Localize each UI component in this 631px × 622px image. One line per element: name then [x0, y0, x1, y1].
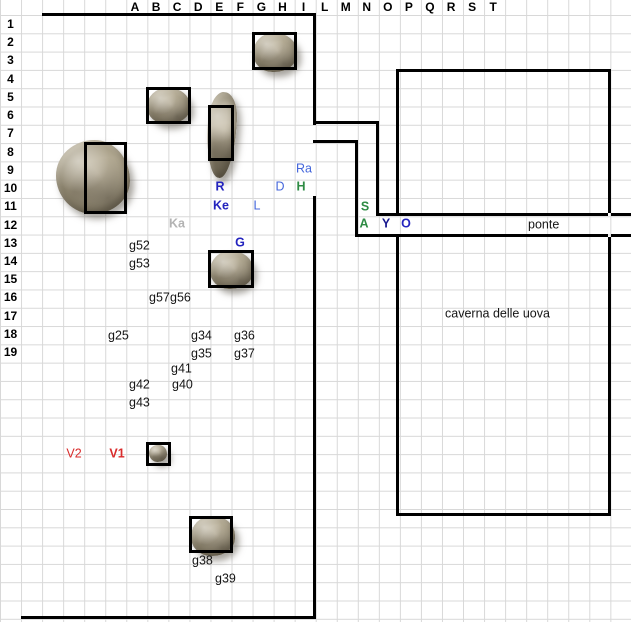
grid-label-g39: g39 — [215, 573, 236, 586]
row-header-17[interactable]: 17 — [0, 307, 21, 325]
wall-segment-3 — [313, 121, 379, 124]
column-header-T[interactable]: T — [483, 0, 504, 15]
wall-segment-11 — [313, 196, 316, 619]
place-label-ponte: ponte — [528, 219, 559, 232]
row-header-11[interactable]: 11 — [0, 197, 21, 215]
grid-label-g40: g40 — [172, 379, 193, 392]
row-header-15[interactable]: 15 — [0, 270, 21, 288]
unit-marker-Y[interactable]: Y — [382, 218, 390, 231]
wall-segment-12 — [21, 616, 316, 619]
row-header-19[interactable]: 19 — [0, 343, 21, 361]
grid-label-g43: g43 — [129, 397, 150, 410]
row-header-16[interactable]: 16 — [0, 288, 21, 306]
wall-segment-17 — [608, 237, 611, 516]
unit-marker-V2[interactable]: V2 — [66, 448, 81, 461]
row-header-14[interactable]: 14 — [0, 252, 21, 270]
column-header-M[interactable]: M — [335, 0, 356, 15]
unit-marker-A[interactable]: A — [359, 218, 368, 231]
map-grid[interactable]: ABCDEFGHILMNOPQRST 123456789101112131415… — [0, 0, 631, 622]
unit-marker-H[interactable]: H — [296, 181, 305, 194]
row-header-5[interactable]: 5 — [0, 88, 21, 106]
row-header-4[interactable]: 4 — [0, 70, 21, 88]
wall-segment-15 — [396, 237, 399, 516]
column-header-Q[interactable]: Q — [419, 0, 440, 15]
grid-label-g53: g53 — [129, 258, 150, 271]
row-header-2[interactable]: 2 — [0, 33, 21, 51]
token-box-D28:E29 — [189, 516, 233, 553]
grid-label-g35: g35 — [191, 348, 212, 361]
row-header-13[interactable]: 13 — [0, 234, 21, 252]
row-header-10[interactable]: 10 — [0, 179, 21, 197]
unit-marker-Ke[interactable]: Ke — [213, 200, 229, 213]
token-box-E6:E8 — [208, 105, 234, 161]
row-header-6[interactable]: 6 — [0, 106, 21, 124]
column-header-P[interactable]: P — [398, 0, 419, 15]
grid-label-g52: g52 — [129, 240, 150, 253]
wall-segment-16 — [608, 69, 611, 213]
wall-segment-9 — [355, 234, 608, 237]
unit-marker-R[interactable]: R — [215, 181, 224, 194]
grid-label-g37: g37 — [234, 348, 255, 361]
unit-marker-V1[interactable]: V1 — [109, 448, 124, 461]
unit-marker-Ka[interactable]: Ka — [169, 218, 185, 231]
wall-segment-8 — [355, 140, 358, 237]
token-box-E14:F15 — [208, 250, 254, 288]
unit-marker-O[interactable]: O — [401, 218, 411, 231]
token-box-B24 — [146, 442, 171, 466]
grid-label-g41: g41 — [171, 363, 192, 376]
place-label-caverna-delle-uova: caverna delle uova — [445, 308, 550, 321]
row-header-8[interactable]: 8 — [0, 143, 21, 161]
token-box-A8:B11 — [84, 142, 127, 214]
column-header-R[interactable]: R — [441, 0, 462, 15]
grid-label-g42: g42 — [129, 379, 150, 392]
grid-label-g34: g34 — [191, 330, 212, 343]
row-header-7[interactable]: 7 — [0, 124, 21, 142]
grid-label-g25: g25 — [108, 330, 129, 343]
wall-segment-1 — [42, 13, 316, 16]
unit-marker-Ra[interactable]: Ra — [296, 163, 312, 176]
wall-segment-7 — [313, 140, 358, 143]
column-header-O[interactable]: O — [377, 0, 398, 15]
row-header-18[interactable]: 18 — [0, 325, 21, 343]
wall-segment-13 — [396, 69, 611, 72]
row-header-1[interactable]: 1 — [0, 15, 21, 33]
unit-marker-G[interactable]: G — [235, 237, 245, 250]
wall-segment-10 — [611, 234, 631, 237]
column-header-N[interactable]: N — [356, 0, 377, 15]
unit-marker-S[interactable]: S — [361, 201, 369, 214]
wall-segment-2 — [313, 13, 316, 125]
row-header-9[interactable]: 9 — [0, 161, 21, 179]
grid-label-g56: g56 — [170, 292, 191, 305]
token-box-B5:C6 — [146, 87, 191, 124]
wall-segment-6 — [611, 213, 631, 216]
grid-label-g57: g57 — [149, 292, 171, 305]
wall-segment-14 — [396, 69, 399, 216]
row-header-3[interactable]: 3 — [0, 51, 21, 69]
grid-label-g38: g38 — [192, 555, 213, 568]
unit-marker-L[interactable]: L — [254, 200, 261, 213]
row-header-12[interactable]: 12 — [0, 216, 21, 234]
column-header-S[interactable]: S — [462, 0, 483, 15]
unit-marker-D[interactable]: D — [275, 181, 284, 194]
grid-label-g36: g36 — [234, 330, 255, 343]
wall-segment-4 — [376, 121, 379, 216]
token-box-G2:H3 — [252, 32, 297, 70]
wall-segment-18 — [396, 513, 611, 516]
column-header-L[interactable]: L — [314, 0, 335, 15]
